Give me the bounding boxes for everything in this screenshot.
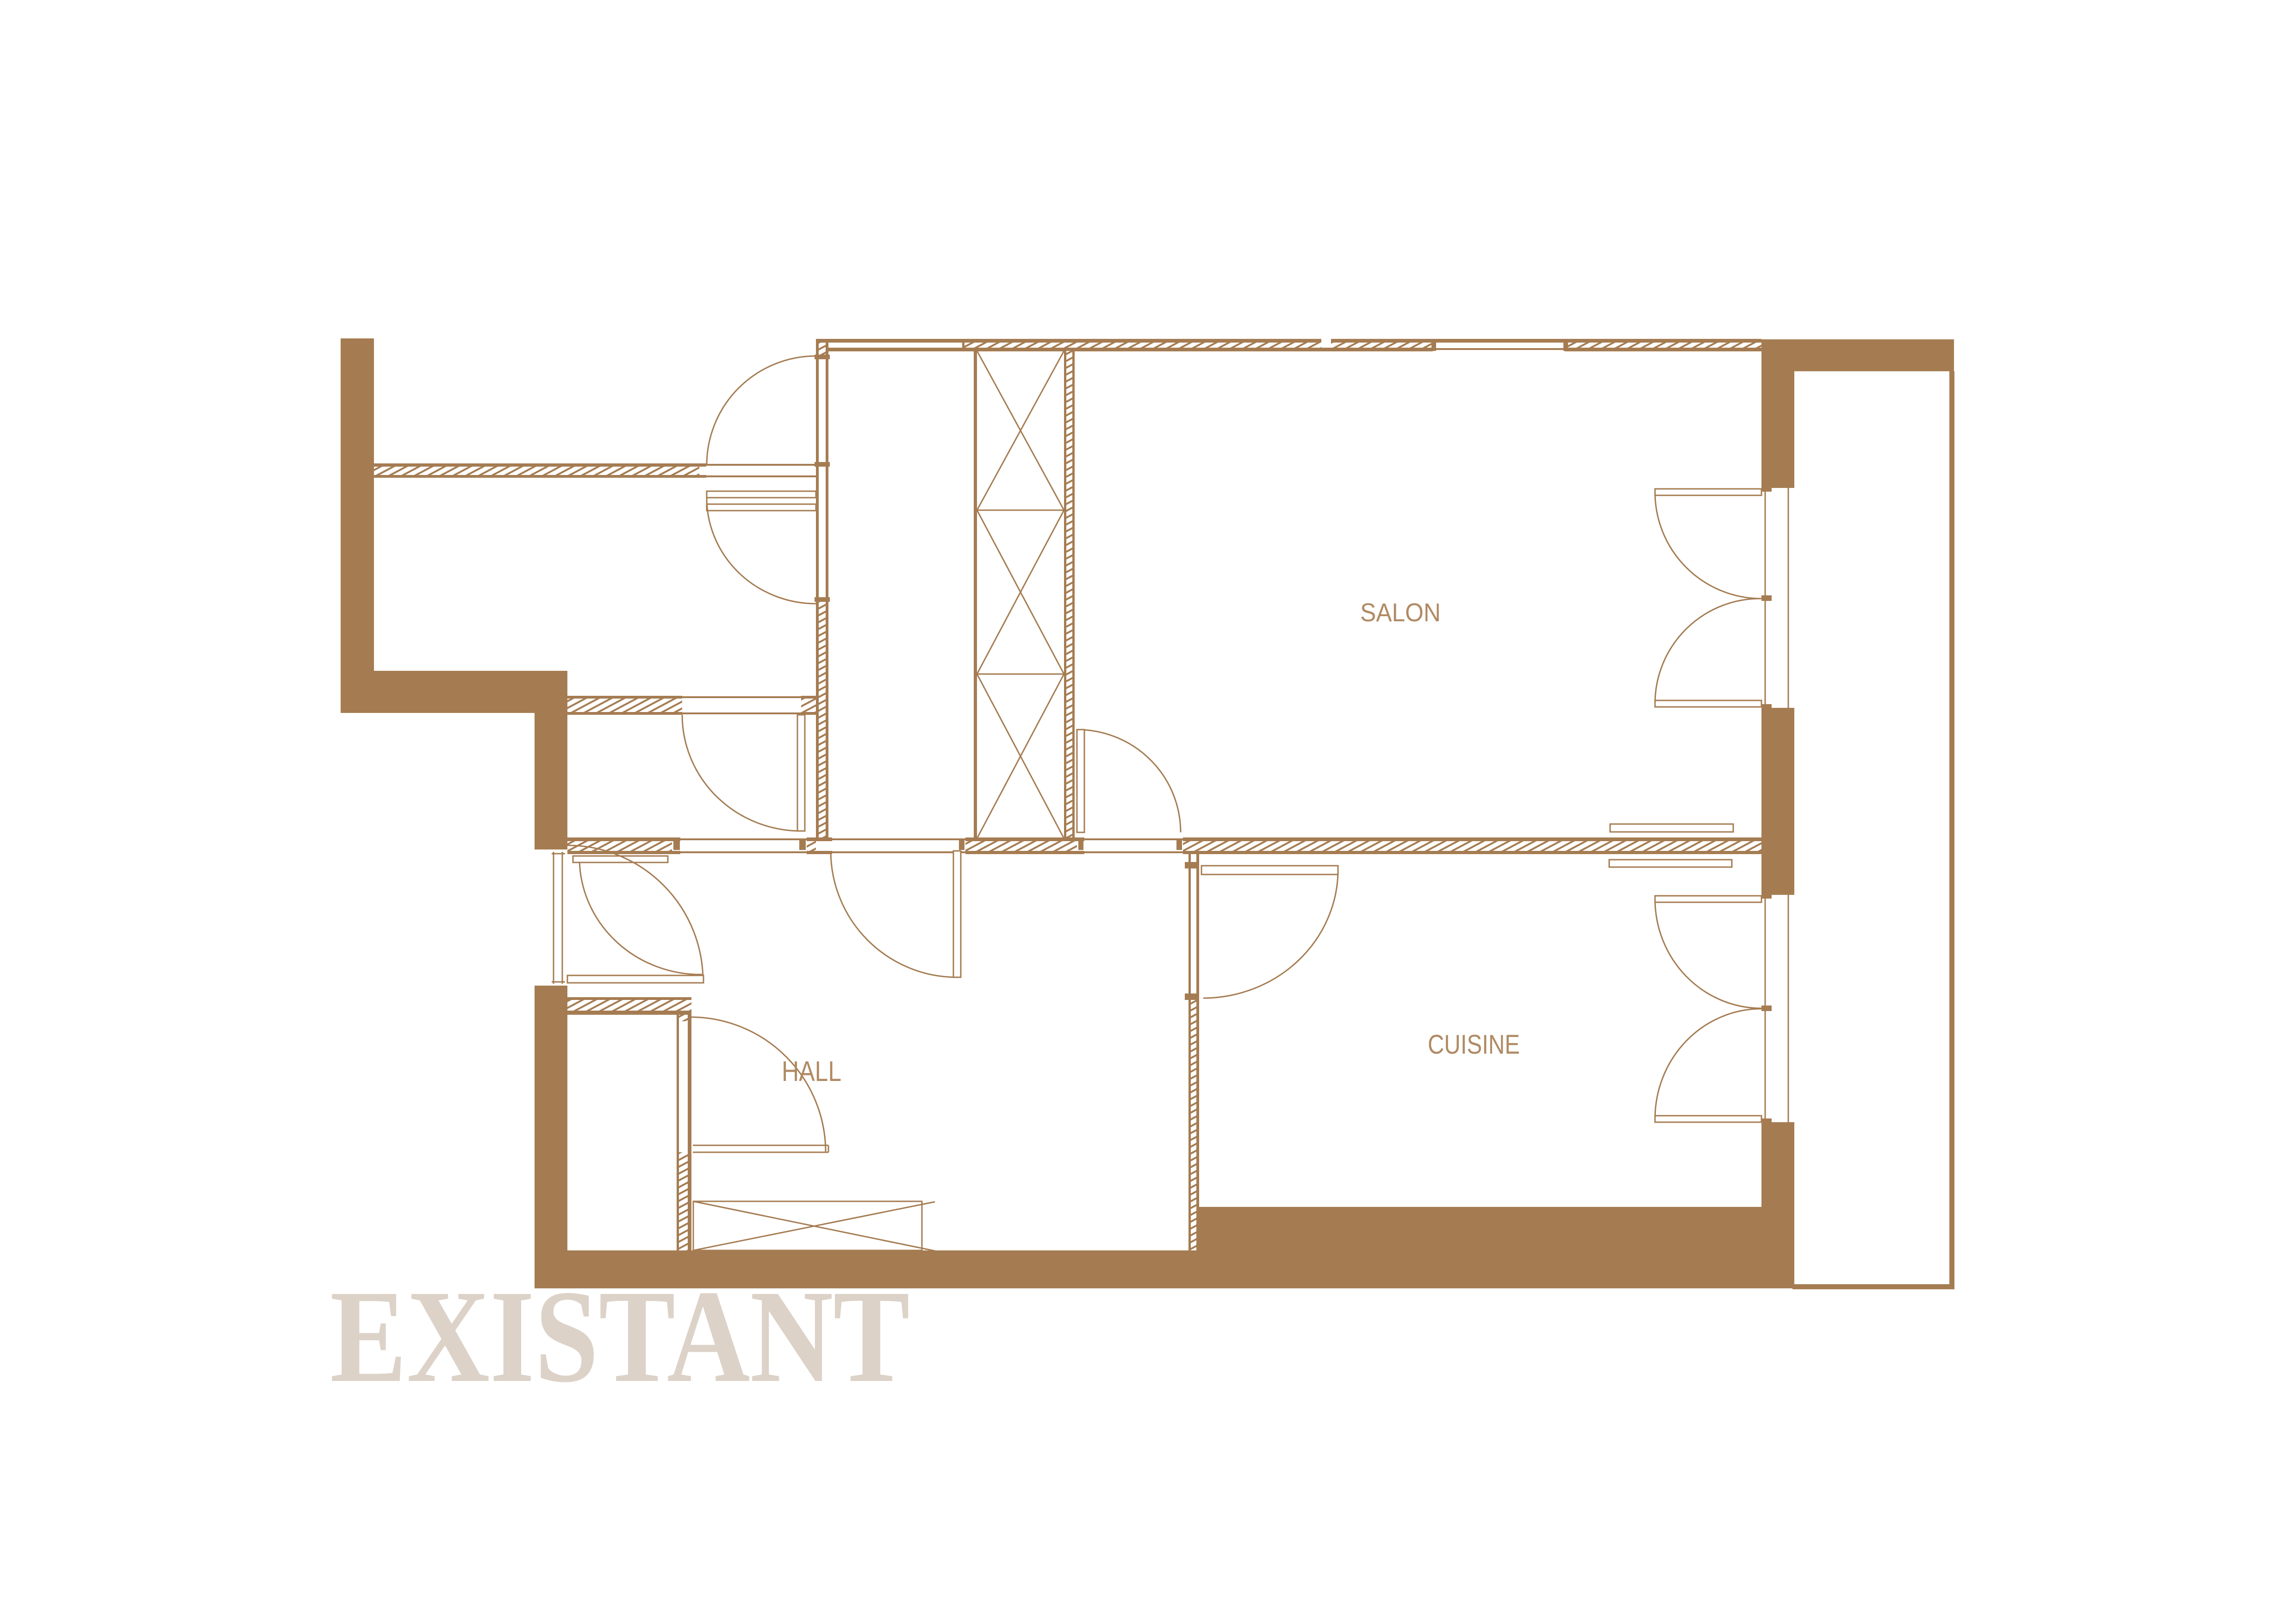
svg-text:SALON: SALON <box>1360 598 1441 627</box>
svg-text:HALL: HALL <box>782 1056 841 1087</box>
svg-text:CUISINE: CUISINE <box>1428 1030 1520 1060</box>
svg-text:EXISTANT: EXISTANT <box>330 1263 910 1410</box>
